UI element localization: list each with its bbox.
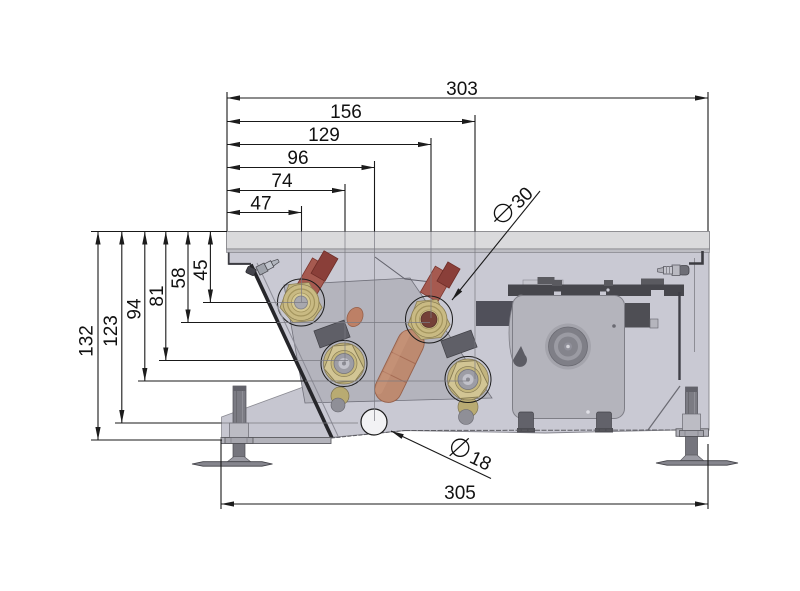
svg-text:129: 129 [308, 125, 340, 146]
svg-text:81: 81 [147, 285, 168, 306]
svg-text:74: 74 [271, 171, 293, 192]
svg-text:132: 132 [77, 325, 98, 357]
svg-text:45: 45 [191, 259, 212, 280]
svg-text:47: 47 [250, 194, 271, 215]
svg-text:156: 156 [330, 102, 362, 123]
svg-text:58: 58 [169, 267, 190, 288]
svg-text:305: 305 [444, 483, 476, 504]
svg-text:123: 123 [101, 315, 122, 347]
svg-text:96: 96 [287, 148, 308, 169]
svg-text:303: 303 [446, 79, 478, 100]
svg-text:94: 94 [125, 298, 146, 320]
